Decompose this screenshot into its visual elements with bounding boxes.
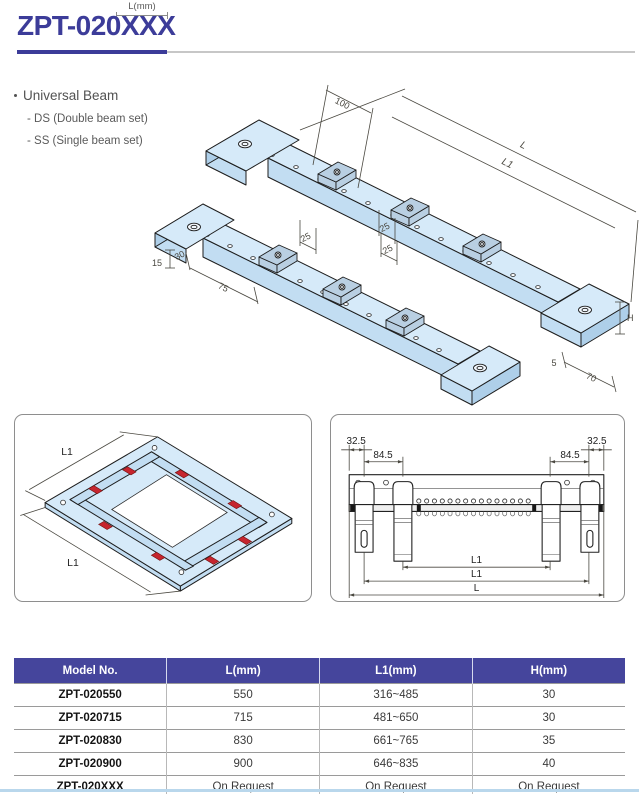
table-row: ZPT-020830 830 661~765 35 [14,730,625,753]
cell-model: ZPT-020715 [14,707,167,730]
pallet-drawing-box: L1 L1 [14,414,312,602]
cell-l: 550 [167,684,320,707]
cell-model: ZPT-020550 [14,684,167,707]
title-rule-accent [17,50,167,54]
table-row: ZPT-020715 715 481~650 30 [14,707,625,730]
cell-l: 900 [167,753,320,776]
dim-label-L1-outer: L1 [471,569,483,580]
feature-heading-text: Universal Beam [23,88,118,103]
cell-l1: 481~650 [320,707,473,730]
cell-model: ZPT-020830 [14,730,167,753]
dim-label-L: L [518,140,528,152]
spec-table-header-row: Model No. L(mm) L1(mm) H(mm) [14,658,625,684]
cell-l1: 316~485 [320,684,473,707]
cell-l: 715 [167,707,320,730]
col-header-l1: L1(mm) [320,658,473,684]
cell-h: 40 [472,753,625,776]
col-header-model: Model No. [14,658,167,684]
cell-h: 35 [472,730,625,753]
footer-accent-line [0,789,639,792]
col-header-l: L(mm) [167,658,320,684]
cell-h: 30 [472,707,625,730]
isometric-beam-drawing: 100 L L1 25 25 25 15 30 75 [150,70,639,410]
elevation-dimensions: 32.5 84.5 84.5 32.5 L1 L1 L [341,436,612,598]
bullet-icon [14,94,17,97]
col-header-h: H(mm) [472,658,625,684]
cell-h: 30 [472,684,625,707]
page-title: ZPT-020XXX [17,10,175,42]
dim-label-5: 5 [551,358,556,368]
dim-label-L1-inner: L1 [471,555,483,566]
elevation-bar [349,475,604,512]
dim-label-84.5-left: 84.5 [373,450,393,461]
dim-label-L1-top: L1 [61,447,73,458]
pallet-plate [45,437,292,591]
datasheet-page: L(mm) ZPT-020XXX Universal Beam - DS (Do… [0,0,639,794]
dim-label-32.5-right: 32.5 [587,436,607,447]
dim-label-32.5-left: 32.5 [346,436,366,447]
dim-label-H: H [627,313,634,323]
elevation-drawing-box: 32.5 84.5 84.5 32.5 L1 L1 L [330,414,625,602]
dim-label-70: 70 [585,371,598,384]
cell-l1: 646~835 [320,753,473,776]
spec-table: Model No. L(mm) L1(mm) H(mm) ZPT-020550 … [14,658,625,794]
dim-label-L1-bottom: L1 [67,558,79,569]
pallet-isometric-drawing: L1 L1 [15,415,310,600]
dim-label-100: 100 [333,95,351,111]
dim-label-L1: L1 [500,156,515,171]
dim-label-L-full: L [474,583,480,594]
title-rule-gray [167,51,635,53]
table-row: ZPT-020900 900 646~835 40 [14,753,625,776]
beam-front-elevation-drawing: 32.5 84.5 84.5 32.5 L1 L1 L [331,415,623,600]
cell-model: ZPT-020900 [14,753,167,776]
cell-l1: 661~765 [320,730,473,753]
dim-label-15: 15 [152,258,162,268]
dim-label-84.5-right: 84.5 [560,450,580,461]
table-row: ZPT-020550 550 316~485 30 [14,684,625,707]
cell-l: 830 [167,730,320,753]
